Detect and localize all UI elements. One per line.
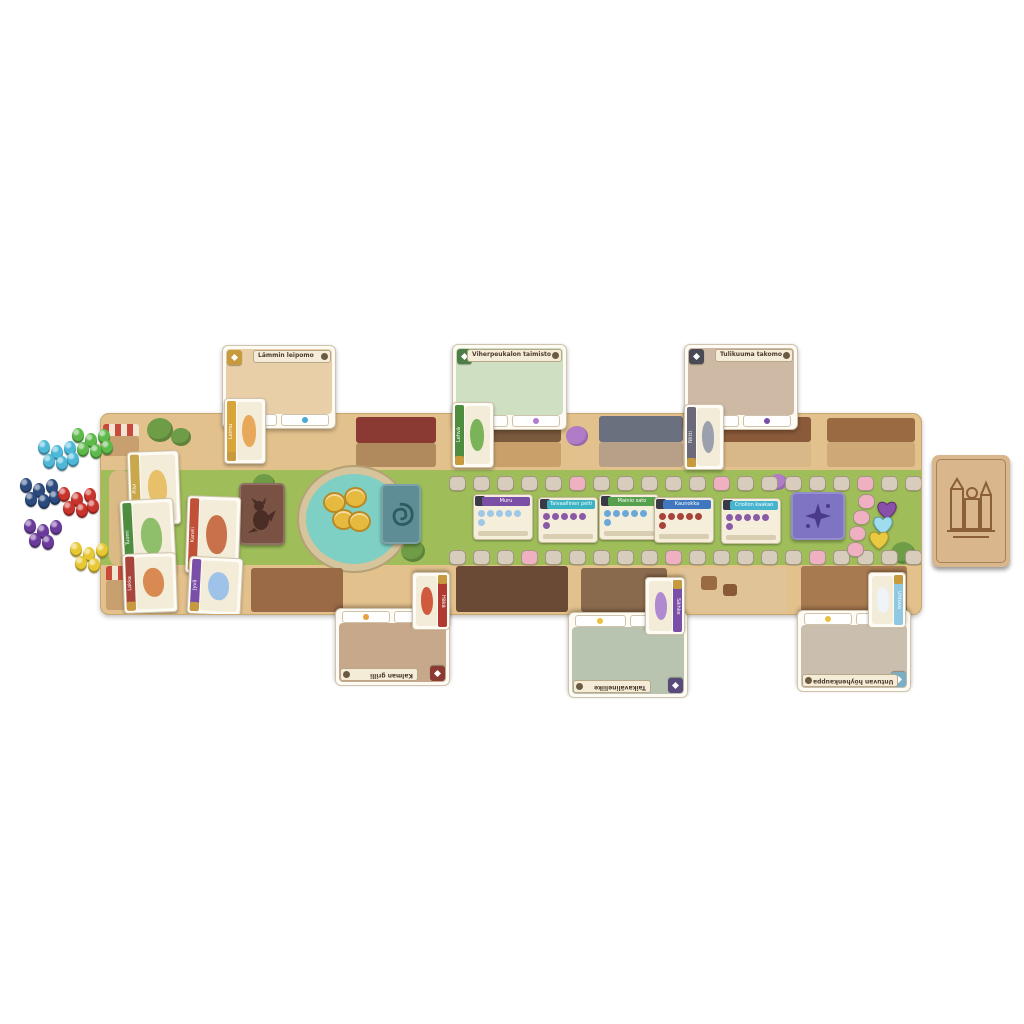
board-art-tree [147, 418, 173, 442]
dragon-card[interactable]: Niitti [684, 404, 724, 470]
track-space [761, 476, 778, 491]
track-space [665, 550, 682, 565]
dragon-figure [655, 593, 668, 621]
track-space [737, 550, 754, 565]
dragon-figure [702, 421, 715, 453]
good-icon [227, 452, 236, 461]
purple-flame-token[interactable] [29, 533, 41, 548]
goal-reward-row [659, 534, 709, 539]
goal-reward-row [726, 535, 776, 540]
goal-reward-row [478, 531, 528, 536]
track-space [689, 550, 706, 565]
good-icon [764, 418, 770, 424]
good-icon [687, 458, 696, 467]
goal-good-icon [514, 510, 521, 517]
heart-track-space [847, 542, 864, 557]
goal-title: Mainio sato [608, 497, 656, 506]
dragon-art [465, 406, 490, 464]
yellow-flame-token[interactable] [75, 556, 87, 571]
good-icon [190, 602, 199, 611]
goal-card[interactable]: Criollon kaakao [721, 498, 781, 544]
good-icon [689, 349, 704, 364]
track-space [713, 550, 730, 565]
board-art-building [356, 443, 436, 467]
track-space [569, 550, 586, 565]
coin-stack[interactable] [348, 511, 371, 532]
goal-good-icon [543, 513, 550, 520]
track-space [641, 550, 658, 565]
track-space [905, 476, 922, 491]
navy-flame-token[interactable] [25, 492, 37, 507]
track-space [833, 476, 850, 491]
fancy-shop-deck[interactable] [791, 492, 845, 540]
goal-good-icon [686, 513, 693, 520]
goal-good-icon [668, 513, 675, 520]
goal-title: Taivaallinen pelti [547, 500, 595, 509]
red-flame-token[interactable] [58, 487, 70, 502]
board-art-building [456, 566, 568, 612]
ability-pill [281, 414, 329, 426]
track-space [617, 476, 634, 491]
good-icon [825, 616, 831, 622]
board-game-photo: Muru Taivaallinen pelti Mainio sato Kaun… [0, 0, 1024, 1024]
dragon-figure [143, 568, 164, 597]
track-space [617, 550, 634, 565]
track-space [881, 550, 898, 565]
heart-track-space [849, 526, 866, 541]
dragon-art [237, 402, 262, 460]
good-icon [533, 418, 539, 424]
goal-good-icon [744, 514, 751, 521]
goal-good-icon [478, 519, 485, 526]
goal-card[interactable]: Muru [473, 494, 533, 540]
goal-good-icon [631, 510, 638, 517]
purple-flame-token[interactable] [50, 520, 62, 535]
dragon-card[interactable]: Lehvä [452, 402, 494, 468]
board-art-building-roof [599, 416, 683, 442]
board-art-building [251, 568, 343, 612]
dragon-figure [206, 515, 228, 554]
dragon-card[interactable]: Säihke [645, 577, 685, 635]
green-flame-token[interactable] [77, 442, 89, 457]
goal-card[interactable]: Mainio sato [599, 494, 659, 540]
track-space [785, 550, 802, 565]
goal-icons [726, 514, 776, 530]
board-art-building-roof [827, 418, 915, 442]
ability-pill [804, 613, 852, 625]
good-icon [430, 666, 445, 681]
dragon-figure [470, 419, 484, 451]
dragon-figure [208, 572, 230, 601]
purple-flame-token[interactable] [24, 519, 36, 534]
good-icon [363, 614, 369, 620]
dragon-card[interactable]: Jyvä [187, 556, 244, 615]
track-space [449, 550, 466, 565]
track-space [713, 476, 730, 491]
track-space [473, 476, 490, 491]
goal-good-icon [604, 519, 611, 526]
goal-card[interactable]: Taivaallinen pelti [538, 497, 598, 543]
track-space [881, 476, 898, 491]
goal-good-icon [543, 522, 550, 529]
board-art-bush [566, 426, 588, 446]
cyan-flame-token[interactable] [67, 452, 79, 467]
track-space [593, 550, 610, 565]
goal-title: Kaunokka [663, 500, 711, 509]
town-etching-icon [943, 469, 999, 553]
shop-title: Kalman grilli [340, 668, 418, 681]
red-flame-token[interactable] [87, 499, 99, 514]
ability-pill [575, 615, 626, 627]
good-icon [438, 575, 447, 584]
goal-reward-row [604, 531, 654, 536]
goal-icons [543, 513, 593, 529]
track-space [761, 550, 778, 565]
cyan-flame-token[interactable] [38, 440, 50, 455]
dragon-art [200, 560, 240, 612]
shop-title: Taikavälineliike [573, 680, 651, 693]
dragon-art [135, 556, 174, 609]
goal-good-icon [570, 513, 577, 520]
good-icon [455, 456, 464, 465]
goal-good-icon [496, 510, 503, 517]
goal-good-icon [505, 510, 512, 517]
dragon-art [872, 576, 893, 624]
yellow-flame-token[interactable] [70, 542, 82, 557]
navy-flame-token[interactable] [20, 478, 32, 493]
goal-card[interactable]: Kaunokka [654, 497, 714, 543]
goal-good-icon [762, 514, 769, 521]
track-space [641, 476, 658, 491]
dragon-card[interactable]: Untuva [868, 572, 906, 628]
dragon-silhouette-icon [246, 494, 278, 534]
track-space [521, 550, 538, 565]
track-space [809, 476, 826, 491]
track-space [497, 550, 514, 565]
dragon-figure [877, 587, 889, 613]
shop-title: Tulikuuma takomo [715, 349, 793, 362]
cyan-flame-token[interactable] [43, 454, 55, 469]
dragon-card[interactable]: Lakka [122, 552, 178, 614]
dragon-figure [140, 517, 162, 555]
goal-icons [478, 510, 528, 526]
track-space [449, 476, 466, 491]
good-icon [302, 417, 308, 423]
good-icon [227, 350, 242, 365]
dragon-deck[interactable] [239, 483, 285, 545]
goal-good-icon [726, 523, 733, 530]
ability-pill [743, 415, 791, 427]
goal-good-icon [659, 513, 666, 520]
dragon-art [697, 408, 720, 466]
goal-good-icon [579, 513, 586, 520]
ability-pill [512, 415, 561, 427]
track-space [569, 476, 586, 491]
heart-track-space [858, 494, 875, 509]
goal-icons [659, 513, 709, 529]
track-space [689, 476, 706, 491]
red-flame-token[interactable] [63, 501, 75, 516]
track-space [785, 476, 802, 491]
track-space [473, 550, 490, 565]
good-icon [673, 580, 682, 589]
dragon-card[interactable]: Häkä [412, 572, 450, 630]
dragon-art [649, 581, 672, 631]
track-space [905, 550, 922, 565]
goal-good-icon [561, 513, 568, 520]
track-space [545, 476, 562, 491]
track-space [737, 476, 754, 491]
board-art-tree [171, 428, 191, 446]
purple-flame-token[interactable] [42, 535, 54, 550]
green-flame-token[interactable] [72, 428, 84, 443]
board-art-crate [701, 576, 717, 590]
shop-title: Viherpeukalon taimisto [467, 349, 562, 362]
board-art-building [827, 442, 915, 467]
goal-good-icon [552, 513, 559, 520]
track-space [809, 550, 826, 565]
goal-good-icon [622, 510, 629, 517]
dragon-figure [242, 415, 256, 447]
good-icon [668, 678, 683, 693]
track-space [497, 476, 514, 491]
goal-title: Criollon kaakao [730, 501, 778, 510]
board-art-building [719, 442, 811, 467]
enchantment-deck[interactable] [381, 484, 421, 544]
flame-spiral-icon [387, 500, 415, 528]
yellow-heart-token[interactable] [868, 530, 890, 550]
shop-deck[interactable] [932, 455, 1010, 567]
shop-title: Untuvan höyhenkauppa [802, 674, 898, 687]
goal-good-icon [753, 514, 760, 521]
board-art-crate [723, 584, 737, 596]
goal-good-icon [604, 510, 611, 517]
shop-title: Lämmin leipomo [253, 350, 331, 363]
goal-good-icon [695, 513, 702, 520]
heart-track-space [853, 510, 870, 525]
coin-stack[interactable] [344, 487, 367, 508]
goal-good-icon [613, 510, 620, 517]
yellow-flame-token[interactable] [96, 543, 108, 558]
track-space [521, 476, 538, 491]
goal-title: Muru [482, 497, 530, 506]
goal-icons [604, 510, 654, 526]
goal-good-icon [640, 510, 647, 517]
goal-good-icon [735, 514, 742, 521]
dragon-figure [421, 588, 433, 616]
board-art-building [599, 442, 683, 467]
dragon-card[interactable]: Leimu [224, 398, 266, 464]
green-flame-token[interactable] [101, 440, 113, 455]
track-space [593, 476, 610, 491]
track-space [857, 476, 874, 491]
good-icon [894, 575, 903, 584]
goal-good-icon [726, 514, 733, 521]
sparkle-icon [803, 501, 833, 531]
good-icon [127, 602, 136, 611]
board-art-building-roof [356, 417, 436, 443]
good-icon [598, 618, 604, 624]
track-space [665, 476, 682, 491]
ability-pill [342, 611, 391, 623]
dragon-art [416, 576, 437, 626]
goal-good-icon [659, 522, 666, 529]
track-space [545, 550, 562, 565]
goal-good-icon [487, 510, 494, 517]
goal-good-icon [478, 510, 485, 517]
yellow-flame-token[interactable] [88, 558, 100, 573]
goal-reward-row [543, 534, 593, 539]
goal-good-icon [677, 513, 684, 520]
